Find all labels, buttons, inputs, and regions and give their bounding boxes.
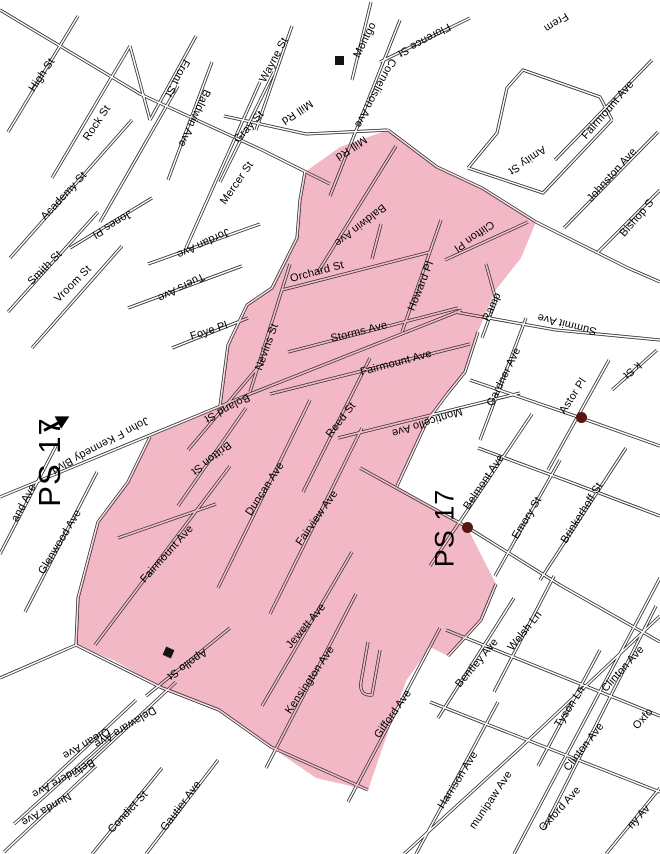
zone-pointer-arrow <box>40 410 73 436</box>
arrow-head <box>55 410 73 428</box>
school-location-dot <box>576 412 587 423</box>
building-marker <box>162 646 174 658</box>
building-marker <box>335 56 344 65</box>
marker-layer <box>0 0 660 854</box>
school-zone-map: High StRock StFront StBaldwin AveAcademy… <box>0 0 660 854</box>
school-location-dot <box>462 522 473 533</box>
